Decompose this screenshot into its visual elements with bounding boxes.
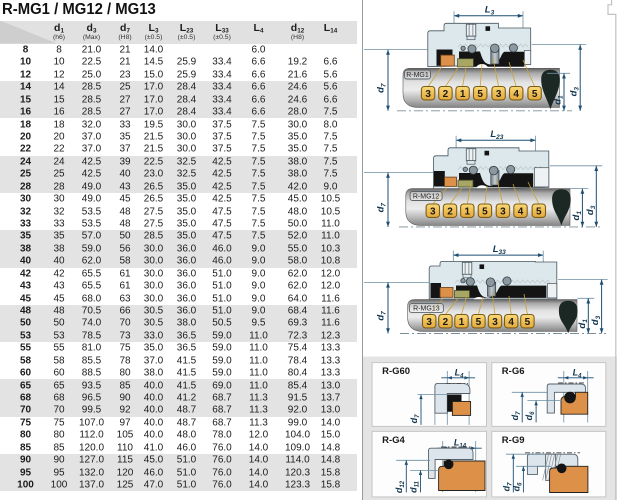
svg-text:R-G6: R-G6 [502, 366, 525, 377]
svg-text:5: 5 [532, 89, 538, 100]
svg-text:2: 2 [447, 206, 453, 217]
svg-text:2: 2 [443, 317, 449, 328]
svg-text:1: 1 [465, 206, 471, 217]
svg-text:3: 3 [496, 89, 502, 100]
svg-text:4: 4 [518, 206, 524, 217]
svg-text:R-G4: R-G4 [382, 435, 405, 446]
svg-text:d3: d3 [585, 205, 597, 215]
svg-text:3: 3 [500, 206, 506, 217]
svg-text:2: 2 [443, 89, 449, 100]
svg-text:L3: L3 [485, 5, 495, 17]
svg-text:d3: d3 [569, 87, 581, 97]
svg-text:R-MG1: R-MG1 [406, 72, 429, 79]
svg-text:d7: d7 [376, 203, 388, 213]
svg-text:5: 5 [477, 89, 483, 100]
svg-text:1: 1 [460, 89, 466, 100]
svg-text:R-G9: R-G9 [502, 435, 525, 446]
svg-text:1: 1 [459, 317, 465, 328]
svg-text:4: 4 [513, 89, 519, 100]
svg-text:5: 5 [536, 206, 542, 217]
svg-text:d7: d7 [376, 311, 388, 321]
svg-text:5: 5 [476, 317, 482, 328]
svg-text:d1: d1 [571, 211, 583, 221]
svg-text:d1: d1 [577, 319, 589, 329]
svg-text:3: 3 [492, 317, 498, 328]
svg-text:5: 5 [482, 206, 488, 217]
svg-text:R-MG13: R-MG13 [413, 306, 440, 313]
svg-text:3: 3 [425, 89, 431, 100]
svg-text:R-G60: R-G60 [382, 366, 410, 377]
svg-text:4: 4 [508, 317, 514, 328]
svg-text:d3: d3 [590, 315, 602, 325]
svg-text:3: 3 [426, 317, 432, 328]
svg-text:5: 5 [525, 317, 531, 328]
svg-text:L23: L23 [490, 129, 503, 141]
svg-text:L33: L33 [493, 244, 506, 256]
svg-text:d7: d7 [376, 83, 388, 93]
svg-text:3: 3 [430, 206, 436, 217]
svg-text:R-MG12: R-MG12 [413, 194, 440, 201]
